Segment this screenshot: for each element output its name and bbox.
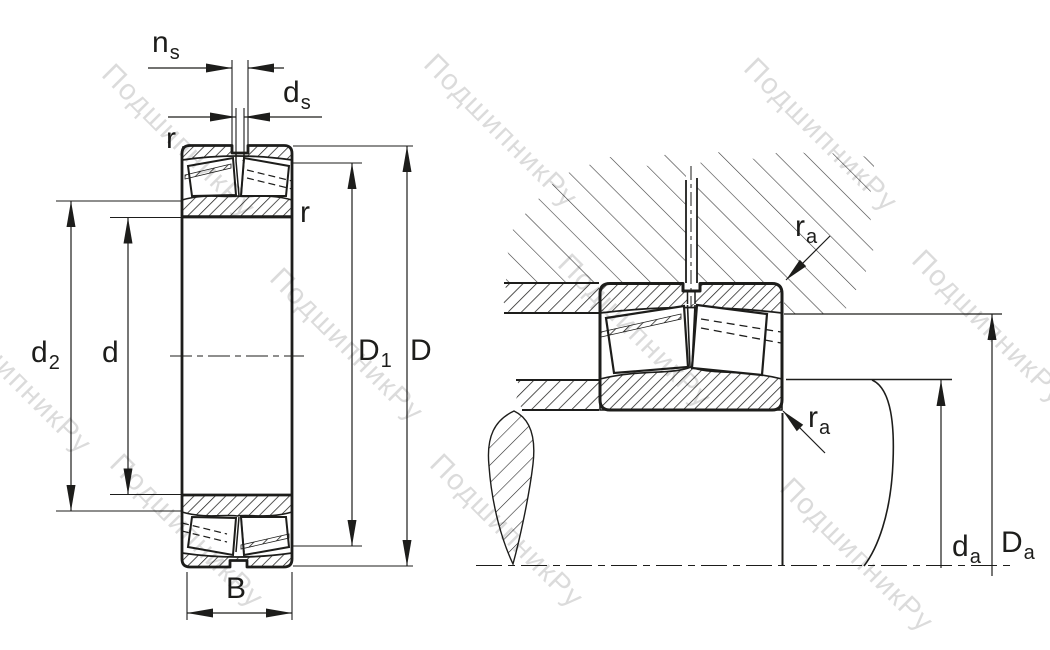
inner-ring-bottom-section — [182, 495, 292, 516]
label-d2: d2 — [31, 338, 59, 368]
roller — [188, 517, 236, 555]
label-ra-bottom: ra — [808, 403, 829, 433]
dimension-arrows — [937, 314, 997, 406]
label-D1: D1 — [358, 336, 391, 366]
technical-drawing-page: ns ds r r d2 d D1 D B ra ra da Da Подшип… — [0, 0, 1050, 650]
bearing-drawing — [0, 0, 1050, 650]
shaft-shoulder-profile — [864, 380, 893, 566]
label-Da: Da — [1001, 528, 1034, 558]
label-ra-top: ra — [795, 212, 816, 242]
label-B: B — [226, 574, 246, 604]
mounted-view — [476, 147, 1014, 576]
label-D: D — [410, 336, 432, 366]
label-d: d — [102, 338, 119, 368]
shaft-breakout-section — [488, 411, 533, 564]
roller — [188, 158, 236, 196]
inner-ring-top-section — [182, 196, 292, 216]
roller — [692, 305, 767, 375]
roller — [241, 158, 289, 196]
label-r-top: r — [166, 124, 176, 154]
dimension-lines — [71, 68, 407, 613]
shaft-sleeve-section — [516, 380, 599, 410]
label-r-right: r — [300, 198, 310, 228]
cover-ring-section — [503, 284, 599, 314]
label-da: da — [952, 532, 980, 562]
label-ds: ds — [283, 78, 310, 108]
label-ns: ns — [152, 28, 179, 58]
